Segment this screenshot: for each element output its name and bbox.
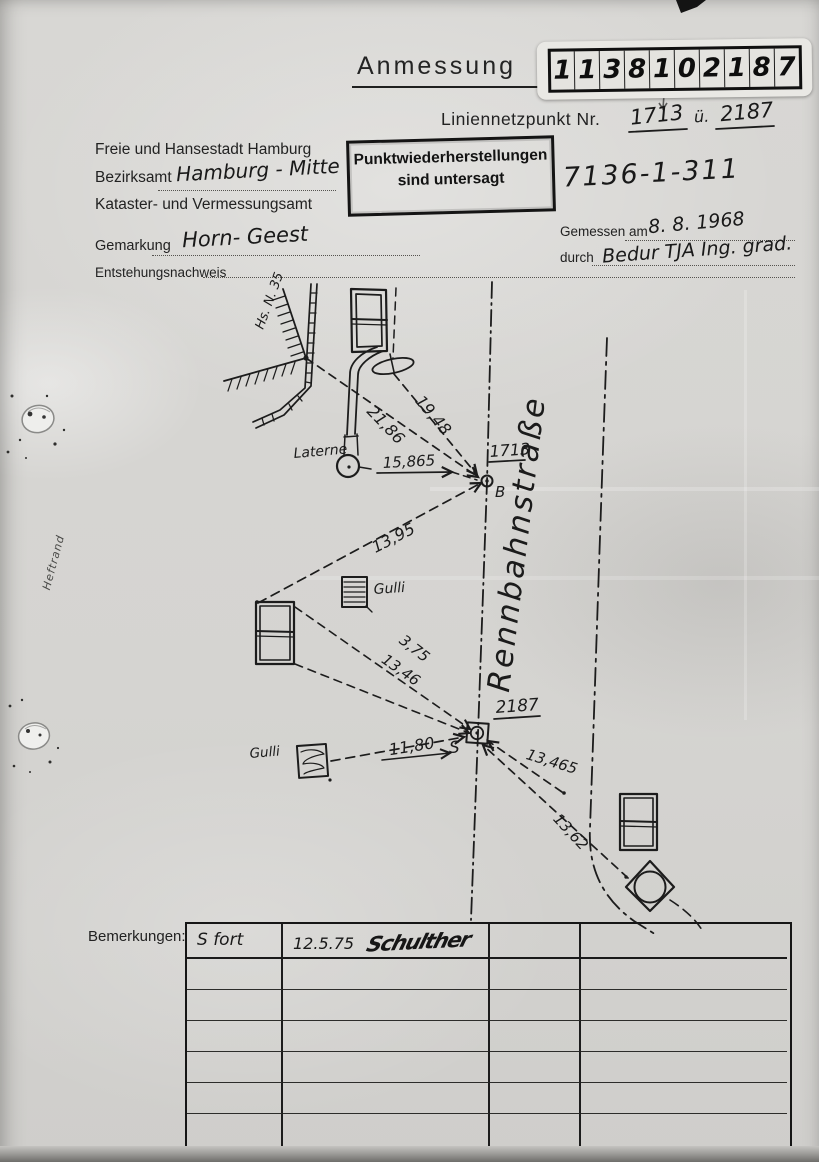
measure-line-15-865	[452, 472, 477, 480]
code-digit: 1	[724, 49, 749, 87]
wall-band	[253, 284, 317, 428]
measure-line-3-75	[295, 607, 470, 729]
remarks-cell	[581, 1052, 787, 1083]
point-s-letter: S	[449, 738, 460, 758]
remarks-cell	[581, 1021, 787, 1052]
code-digit: 2	[699, 49, 724, 87]
office-department: Kataster- und Vermessungsamt	[95, 196, 312, 214]
measure-line-13-465	[488, 741, 562, 792]
code-sticker: 1 1 3 8 1 0 2 1 8 7	[537, 38, 813, 100]
remarks-cell	[187, 1083, 283, 1114]
page-title: Anmessung	[357, 52, 516, 81]
line-point-label: Liniennetzpunkt Nr.	[441, 109, 600, 130]
scanned-document: Hs. N. 35 Laterne	[0, 0, 819, 1162]
code-digit: 1	[550, 51, 574, 89]
remark-text: S fort	[197, 930, 243, 950]
by-label: durch	[560, 250, 594, 265]
remarks-cell	[187, 990, 283, 1021]
remarks-cell	[581, 924, 787, 959]
street-name-label: Rennbahnstraße	[481, 393, 553, 694]
remarks-cell	[490, 1021, 581, 1052]
title-underline	[352, 86, 540, 88]
measure-underline-15-865	[377, 472, 452, 473]
measure-line-15-865-tick	[359, 467, 371, 469]
remarks-cell	[283, 959, 490, 990]
house-number-label: Hs. N. 35	[253, 270, 287, 331]
measure-label-15-865: 15,865	[382, 451, 435, 472]
code-digit: 8	[624, 50, 649, 88]
code-digit: 8	[748, 49, 773, 87]
scan-artifact	[676, 0, 706, 13]
remarks-cell: 12.5.75Schulther	[283, 924, 490, 959]
gulli-tick	[366, 606, 372, 612]
line-point-1: 1713	[629, 100, 685, 129]
remarks-cell	[283, 1052, 490, 1083]
remarks-cell	[187, 1021, 283, 1052]
street-edge-line	[590, 338, 658, 936]
point-s	[466, 716, 540, 744]
remarks-cell	[490, 924, 581, 959]
point-s-number: 2187	[495, 695, 540, 718]
line-point-separator: ü.	[694, 107, 710, 127]
remarks-cell: S fort	[187, 924, 283, 959]
measure-label-11-80: 11,80	[388, 733, 436, 759]
remarks-label: Bemerkungen:	[88, 928, 186, 945]
measure-line-19-48-ext	[393, 288, 396, 358]
punch-hole-bottom	[9, 699, 60, 773]
remarks-cell	[490, 990, 581, 1021]
measure-label-19-48: 19,48	[411, 391, 455, 438]
fold-line	[430, 487, 819, 491]
code-digit: 3	[599, 51, 624, 89]
measure-line-13-62	[483, 745, 628, 878]
underline-1713	[629, 129, 687, 132]
remarks-cell	[581, 959, 787, 990]
point-b-number: 1713	[489, 439, 531, 461]
measured-date: 8. 8. 1968	[647, 208, 745, 238]
code-digit: 1	[574, 51, 599, 89]
remarks-cell	[581, 1114, 787, 1147]
fold-line	[300, 576, 819, 580]
remarks-cell	[581, 1083, 787, 1114]
measure-line-11-80	[331, 737, 464, 761]
gulli-left-symbol	[297, 744, 332, 782]
measured-label: Gemessen am	[560, 224, 648, 239]
remarks-cell	[490, 1114, 581, 1147]
manhole-symbol	[626, 861, 674, 911]
remarks-cell	[490, 959, 581, 990]
remarks-cell	[283, 990, 490, 1021]
remark-date: 12.5.75	[293, 934, 354, 953]
code-digit: 7	[773, 48, 798, 86]
remarks-cell	[490, 1083, 581, 1114]
measure-line-13-46	[295, 664, 469, 733]
punch-hole-top	[7, 395, 66, 460]
lantern-symbol	[337, 347, 415, 477]
scan-bottom-edge	[0, 1146, 819, 1162]
code-digit: 1	[649, 50, 674, 88]
remarks-cell	[283, 1083, 490, 1114]
code-digit-strip: 1 1 3 8 1 0 2 1 8 7	[547, 45, 802, 93]
by-dotted-line	[592, 264, 795, 266]
measure-label-21-86: 21,86	[363, 402, 408, 448]
measure-underline-11-80	[382, 753, 450, 760]
signature: Schulther	[364, 927, 473, 956]
file-number: 7136-1-311	[562, 153, 740, 193]
measure-label-13-62: 13,62	[549, 810, 591, 854]
remarks-cell	[283, 1114, 490, 1147]
remarks-cell	[283, 1021, 490, 1052]
lantern-label: Laterne	[293, 441, 348, 462]
line-point-2: 2187	[719, 98, 774, 127]
underline-2187	[716, 126, 774, 129]
measure-label-3-75: 3,75	[396, 631, 433, 666]
measure-label-13-95: 13,95	[369, 519, 418, 557]
gulli-top-symbol	[342, 577, 367, 607]
remarks-cell	[490, 1052, 581, 1083]
measure-line-21-86	[306, 358, 478, 477]
district-dotted-line	[158, 189, 336, 191]
measure-label-13-46: 13,46	[378, 650, 424, 689]
gemarkung-label: Gemarkung	[95, 238, 171, 254]
gemarkung-value: Horn- Geest	[181, 222, 308, 253]
building-bottom-right	[620, 794, 657, 850]
street-axis-line	[471, 282, 492, 920]
measure-line-13-95	[258, 483, 481, 603]
fold-line	[744, 290, 747, 720]
remarks-cell	[581, 990, 787, 1021]
measure-line-19-48	[394, 374, 477, 475]
building-middle	[256, 602, 294, 664]
building-top	[351, 289, 387, 352]
point-b	[482, 460, 526, 487]
hatched-boundary	[224, 289, 309, 391]
stamp-line1: Punktwiederherstellungen	[349, 146, 551, 169]
origin-dotted-line	[203, 276, 795, 278]
margin-label: Heftrand	[40, 533, 67, 591]
code-digit: 0	[674, 50, 699, 88]
remarks-table: S fort 12.5.75Schulther	[185, 922, 792, 1149]
district-label: Bezirksamt	[95, 169, 172, 187]
remarks-cell	[187, 1114, 283, 1147]
remarks-cell	[187, 959, 283, 990]
gulli-left-label: Gulli	[249, 743, 281, 762]
measure-label-13-465: 13,465	[524, 745, 579, 778]
point-b-letter: B	[495, 483, 505, 501]
gulli-top-label: Gulli	[373, 580, 406, 598]
remarks-cell	[187, 1052, 283, 1083]
gemarkung-dotted-line	[152, 254, 420, 256]
stamp-line2: sind untersagt	[350, 168, 552, 191]
restoration-stamp: Punktwiederherstellungen sind untersagt	[346, 135, 556, 216]
